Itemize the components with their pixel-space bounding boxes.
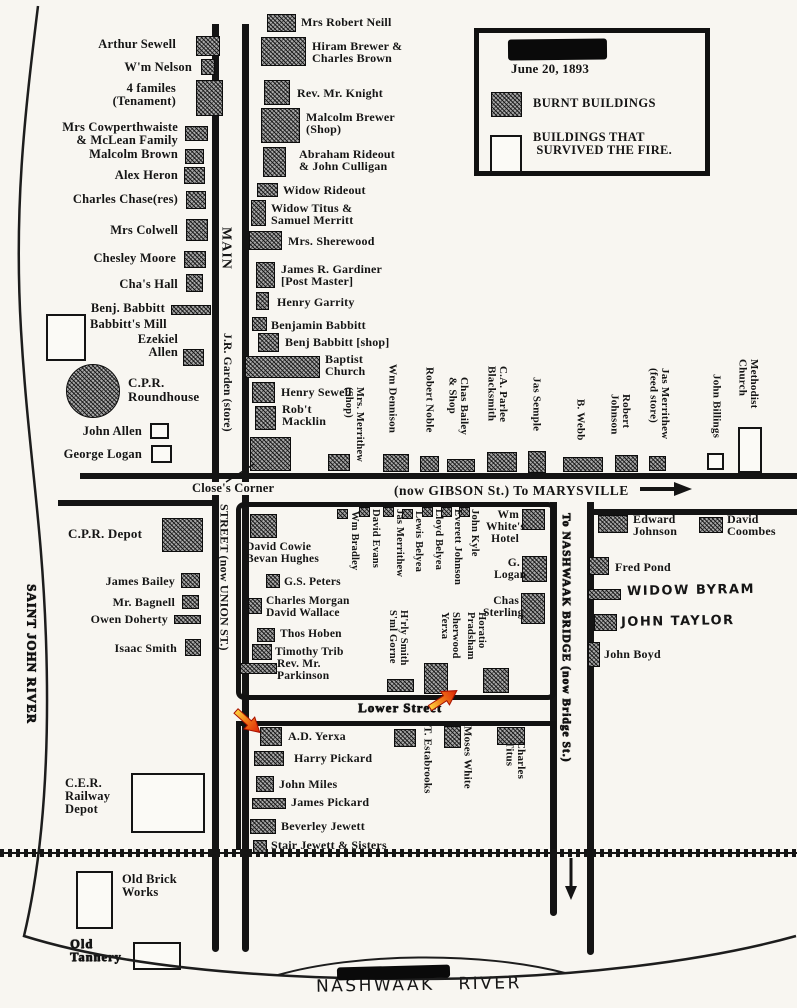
building-label: Mrs Robert Neill bbox=[301, 16, 392, 28]
fire-map: June 20, 1893 BURNT BUILDINGS BUILDINGS … bbox=[0, 0, 797, 1008]
building-label: Malcolm Brown bbox=[48, 148, 178, 161]
survived-building bbox=[151, 445, 172, 463]
building-label: Rev. Mr. Parkinson bbox=[277, 659, 329, 683]
burnt-building bbox=[261, 37, 306, 66]
burnt-building bbox=[337, 509, 348, 519]
burnt-building bbox=[256, 292, 269, 310]
burnt-building bbox=[598, 515, 628, 533]
building-label: Widow Titus & Samuel Merritt bbox=[271, 202, 353, 227]
building-label: Alex Heron bbox=[48, 169, 178, 182]
building-label: C.A. Parlee Blacksmith bbox=[485, 366, 508, 422]
burnt-building bbox=[588, 589, 621, 600]
building-label: WIDOW BYRAM bbox=[627, 583, 755, 599]
building-label: Owen Doherty bbox=[80, 613, 168, 625]
legend-date: June 20, 1893 bbox=[511, 62, 589, 76]
burnt-building bbox=[182, 595, 199, 609]
burnt-building bbox=[563, 457, 603, 472]
building-label: Moses White bbox=[461, 726, 472, 789]
burnt-building bbox=[251, 200, 266, 226]
depot-block-top-line bbox=[58, 500, 214, 506]
burnt-building bbox=[252, 317, 267, 331]
building-label: John Kyle bbox=[468, 509, 479, 557]
burnt-building bbox=[174, 615, 201, 624]
building-label: Beverley Jewett bbox=[281, 820, 365, 832]
building-label: C.E.R. Railway Depot bbox=[65, 777, 110, 816]
railway-track bbox=[0, 849, 797, 857]
building-label: Henry Garrity bbox=[277, 296, 355, 308]
building-label: Hiram Brewer & Charles Brown bbox=[312, 40, 402, 65]
building-label: Lloyd Belyea bbox=[432, 509, 443, 570]
bridge-street-down-arrow bbox=[565, 858, 577, 900]
legend-burnt-swatch bbox=[491, 92, 522, 117]
building-label: Charles Titus bbox=[503, 741, 526, 779]
burnt-building bbox=[487, 452, 517, 472]
building-label: C.P.R. Depot bbox=[68, 527, 142, 541]
burnt-building bbox=[250, 437, 291, 471]
building-label: Babbitt's Mill bbox=[90, 318, 167, 331]
burnt-building bbox=[394, 729, 416, 747]
building-label: Harry Pickard bbox=[294, 752, 372, 764]
building-label: Chesley Moore bbox=[48, 252, 176, 265]
building-label: Ezekiel Allen bbox=[106, 333, 178, 359]
gibson-street-label: (now GIBSON St.) To MARYSVILLE bbox=[394, 484, 629, 498]
survived-building bbox=[46, 314, 86, 361]
burnt-building bbox=[589, 557, 609, 575]
burnt-building bbox=[522, 509, 545, 530]
building-label: Old Tannery bbox=[70, 938, 122, 964]
building-label: John Boyd bbox=[604, 648, 661, 660]
burnt-building bbox=[186, 219, 208, 241]
building-label: Mrs Colwell bbox=[48, 224, 178, 237]
survived-building bbox=[150, 423, 169, 439]
building-label: John Billings bbox=[710, 374, 721, 438]
burnt-building bbox=[528, 451, 546, 473]
building-label: 4 familes (Tenament) bbox=[62, 82, 176, 108]
burnt-building bbox=[196, 36, 220, 56]
survived-building bbox=[131, 773, 205, 833]
building-label: Baptist Church bbox=[325, 353, 365, 378]
burnt-building bbox=[184, 251, 206, 268]
building-label: David Evans bbox=[369, 509, 380, 568]
building-label: Charles Morgan David Wallace bbox=[266, 596, 350, 620]
burnt-building bbox=[185, 126, 208, 141]
burnt-building bbox=[250, 514, 277, 538]
burnt-building bbox=[185, 639, 201, 656]
burnt-building bbox=[252, 382, 275, 403]
burnt-building bbox=[196, 80, 223, 116]
building-label: G. Logan bbox=[494, 558, 520, 582]
legend-survived-swatch bbox=[490, 135, 522, 173]
burnt-building bbox=[184, 167, 205, 184]
building-label: Benj. Babbitt bbox=[38, 302, 165, 315]
building-label: B. Webb bbox=[574, 399, 585, 441]
bridge-street-label: To NASHWAAK BRIDGE (now Bridge St.) bbox=[559, 513, 571, 762]
building-label: Methodist Church bbox=[736, 359, 759, 408]
building-label: John Allen bbox=[58, 425, 142, 438]
burnt-building bbox=[256, 776, 274, 792]
marysville-arrow bbox=[640, 482, 692, 496]
building-label: Rev. Mr. Knight bbox=[297, 87, 383, 99]
burnt-building bbox=[171, 305, 211, 315]
building-label: Benjamin Babbitt bbox=[271, 319, 366, 331]
burnt-building bbox=[260, 727, 282, 746]
main-street-label: MAIN bbox=[218, 227, 233, 270]
building-label: Mrs. Sherewood bbox=[288, 235, 375, 247]
building-label: David Cowie Bevan Hughes bbox=[246, 542, 319, 566]
building-label: Widow Rideout bbox=[283, 184, 366, 196]
burnt-building bbox=[383, 454, 409, 472]
building-label: Wm Bradley bbox=[348, 511, 359, 570]
lower-street-label: Lower Street bbox=[358, 701, 442, 715]
saint-john-river-label: SAINT JOHN RIVER bbox=[25, 584, 39, 724]
legend-box: June 20, 1893 BURNT BUILDINGS BUILDINGS … bbox=[474, 28, 710, 176]
building-label: Jas Merrithew bbox=[393, 509, 404, 577]
burnt-building bbox=[420, 456, 439, 472]
burnt-building bbox=[66, 364, 120, 418]
building-label: C.P.R. Roundhouse bbox=[128, 376, 199, 403]
burnt-building bbox=[264, 80, 290, 105]
building-label: Thos Hoben bbox=[280, 629, 342, 641]
burnt-building bbox=[254, 751, 284, 766]
burnt-building bbox=[250, 819, 276, 834]
building-label: Benj Babbitt [shop] bbox=[285, 336, 390, 348]
building-label: Everett Johnson bbox=[451, 509, 462, 585]
building-label: Isaac Smith bbox=[95, 642, 177, 654]
burnt-building bbox=[162, 518, 203, 552]
building-label: G.S. Peters bbox=[284, 577, 341, 589]
building-label: Jas Merrithew (feed store) bbox=[647, 368, 670, 439]
burnt-building bbox=[253, 840, 267, 853]
union-street-label: STREET (now UNION ST.) bbox=[218, 504, 230, 651]
burnt-building bbox=[248, 598, 262, 614]
building-label: Jas Semple bbox=[530, 377, 541, 431]
building-label: Malcolm Brewer (Shop) bbox=[306, 111, 395, 136]
building-label: Mrs Cowperthwaiste & McLean Family bbox=[38, 121, 178, 147]
building-label: Sherwood Yerxa bbox=[438, 612, 460, 659]
burnt-building bbox=[256, 262, 275, 288]
building-label: Lewis Belyea bbox=[412, 511, 423, 572]
building-label: James Bailey bbox=[95, 575, 175, 587]
building-label: H'rly Smith S'ml Gorne bbox=[386, 610, 408, 666]
burnt-building bbox=[252, 644, 272, 660]
building-label: Charles Chase(res) bbox=[38, 193, 178, 206]
building-label: T. Estabrooks bbox=[421, 726, 432, 794]
survived-building bbox=[738, 427, 762, 473]
building-label: JOHN TAYLOR bbox=[621, 614, 735, 629]
legend-burnt-label: BURNT BUILDINGS bbox=[533, 97, 656, 110]
building-label: John Miles bbox=[279, 778, 337, 790]
burnt-building bbox=[588, 642, 600, 667]
burnt-building bbox=[649, 456, 666, 471]
burnt-building bbox=[186, 274, 203, 292]
building-label: David Coombes bbox=[727, 513, 776, 538]
burnt-building bbox=[387, 679, 414, 692]
building-label: A.D. Yerxa bbox=[288, 730, 346, 742]
building-label: Horatio Pradsham bbox=[464, 612, 486, 660]
burnt-building bbox=[181, 573, 200, 588]
burnt-building bbox=[263, 147, 286, 177]
burnt-building bbox=[185, 149, 204, 164]
burnt-building bbox=[699, 517, 723, 533]
building-label: Old Brick Works bbox=[122, 873, 177, 899]
legend-title-blotted bbox=[508, 38, 607, 60]
building-label: Mrs. Merrithew (Shop) bbox=[342, 387, 364, 462]
building-label: Chas Sterling bbox=[483, 596, 519, 620]
burnt-building bbox=[483, 668, 509, 693]
burnt-building bbox=[257, 183, 278, 197]
burnt-building bbox=[183, 349, 204, 366]
burnt-building bbox=[424, 663, 448, 694]
building-label: Cha's Hall bbox=[48, 278, 178, 291]
burnt-building bbox=[261, 108, 300, 143]
building-label: George Logan bbox=[46, 448, 142, 461]
building-label: Wm White's Hotel bbox=[486, 510, 519, 546]
building-label: Chas Bailey & Shop bbox=[446, 377, 469, 435]
legend-survived-label: BUILDINGS THAT SURVIVED THE FIRE. bbox=[533, 131, 672, 157]
jr-garden-store-label: J.R. Garden (store) bbox=[220, 333, 232, 432]
burnt-building bbox=[258, 333, 279, 352]
building-label: Robert Johnson bbox=[608, 394, 631, 435]
burnt-building bbox=[201, 59, 215, 75]
burnt-building bbox=[267, 14, 296, 32]
burnt-building bbox=[249, 231, 282, 250]
burnt-building bbox=[255, 406, 276, 430]
building-label: Fred Pond bbox=[615, 561, 671, 573]
survived-building bbox=[76, 871, 113, 929]
building-label: Abraham Rideout & John Culligan bbox=[299, 148, 395, 173]
building-label: W'm Nelson bbox=[62, 61, 192, 74]
building-label: Arthur Sewell bbox=[60, 38, 176, 51]
burnt-building bbox=[521, 593, 545, 624]
burnt-building bbox=[266, 574, 280, 588]
burnt-building bbox=[447, 459, 475, 472]
burnt-building bbox=[186, 191, 206, 209]
burnt-building bbox=[245, 356, 320, 378]
burnt-building bbox=[594, 614, 617, 631]
survived-building bbox=[707, 453, 724, 470]
building-label: Rob't Macklin bbox=[282, 403, 326, 428]
gibson-street-north-line bbox=[80, 473, 797, 479]
building-label: Edward Johnson bbox=[633, 513, 677, 538]
burnt-building bbox=[444, 726, 461, 748]
building-label: Mr. Bagnell bbox=[95, 596, 175, 608]
building-label: James Pickard bbox=[291, 796, 369, 808]
building-label: Stair Jewett & Sisters bbox=[271, 839, 387, 851]
closes-corner-label: Close's Corner bbox=[189, 482, 277, 495]
burnt-building bbox=[615, 455, 638, 472]
building-label: Robert Noble bbox=[423, 367, 434, 433]
burnt-building bbox=[252, 798, 286, 809]
survived-building bbox=[133, 942, 181, 970]
burnt-building bbox=[257, 628, 275, 642]
building-label: James R. Gardiner [Post Master] bbox=[281, 263, 382, 288]
burnt-building bbox=[240, 663, 277, 674]
building-label: Wm Dennison bbox=[386, 364, 397, 433]
